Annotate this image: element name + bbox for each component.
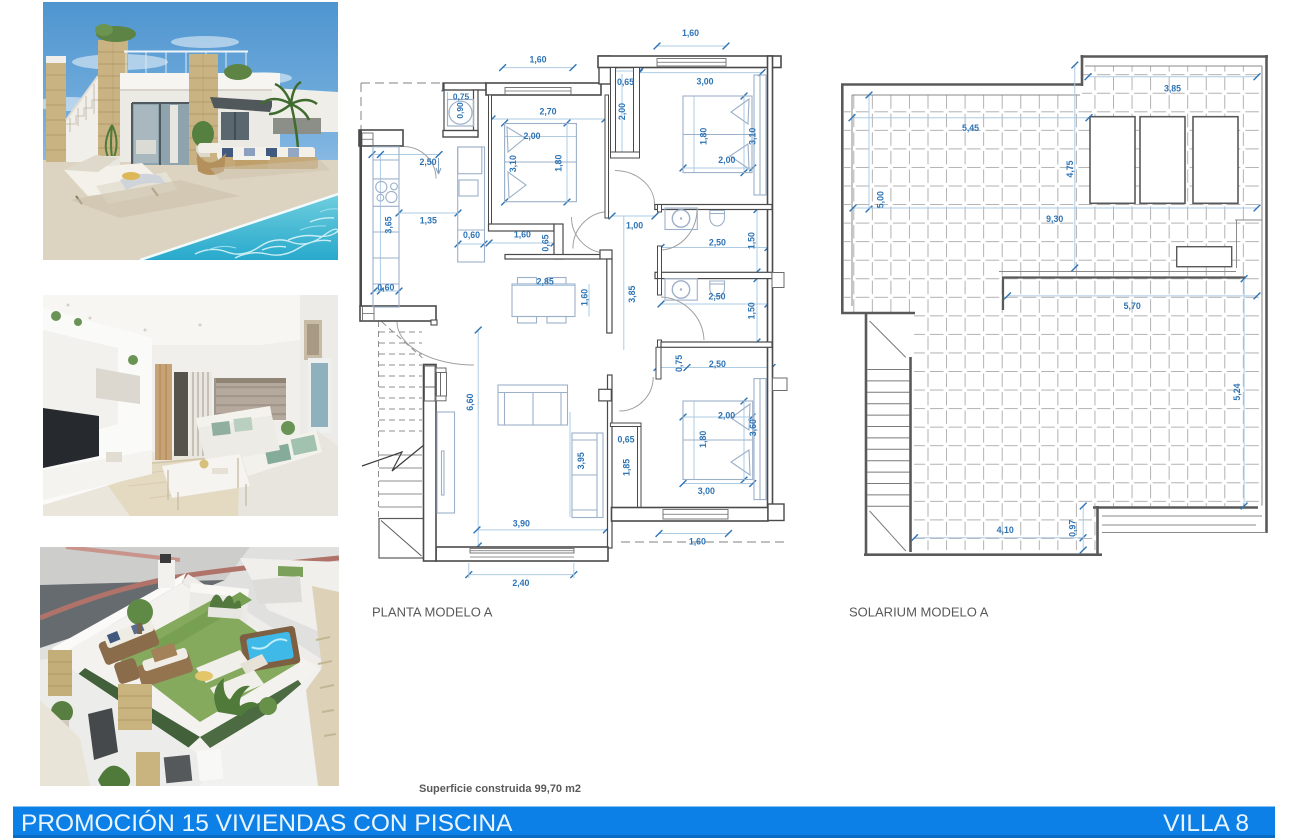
svg-text:0,75: 0,75 xyxy=(453,91,470,101)
svg-text:3,95: 3,95 xyxy=(576,452,586,469)
svg-text:0,65: 0,65 xyxy=(541,234,551,251)
svg-text:5,00: 5,00 xyxy=(876,191,886,208)
svg-text:3,90: 3,90 xyxy=(513,518,530,528)
svg-text:2,50: 2,50 xyxy=(419,157,436,167)
svg-text:3,85: 3,85 xyxy=(627,286,637,303)
svg-text:2,85: 2,85 xyxy=(537,276,554,286)
svg-text:1,85: 1,85 xyxy=(622,459,632,476)
svg-text:5,70: 5,70 xyxy=(1124,301,1141,311)
svg-text:6,60: 6,60 xyxy=(465,394,475,411)
svg-text:3,65: 3,65 xyxy=(384,216,394,233)
svg-text:2,70: 2,70 xyxy=(539,106,556,116)
svg-text:0,65: 0,65 xyxy=(617,434,634,444)
svg-text:VILLA 8: VILLA 8 xyxy=(1163,810,1249,837)
svg-text:4,10: 4,10 xyxy=(997,525,1014,535)
svg-text:0,97: 0,97 xyxy=(1068,520,1078,537)
svg-text:3,10: 3,10 xyxy=(747,128,757,145)
svg-text:4,75: 4,75 xyxy=(1065,160,1075,177)
svg-text:3,00: 3,00 xyxy=(696,77,713,87)
svg-text:1,60: 1,60 xyxy=(529,55,546,65)
svg-text:SOLARIUM MODELO A: SOLARIUM MODELO A xyxy=(849,605,989,620)
svg-text:1,00: 1,00 xyxy=(626,221,643,231)
svg-text:3,10: 3,10 xyxy=(508,155,518,172)
svg-text:1,35: 1,35 xyxy=(420,216,437,226)
svg-text:2,50: 2,50 xyxy=(709,359,726,369)
svg-text:1,50: 1,50 xyxy=(746,232,756,249)
svg-text:PLANTA MODELO A: PLANTA MODELO A xyxy=(372,605,493,620)
svg-text:Superficie construida 99,70 m2: Superficie construida 99,70 m2 xyxy=(419,783,581,795)
svg-text:1,60: 1,60 xyxy=(682,28,699,38)
svg-text:3,60: 3,60 xyxy=(748,419,758,436)
svg-text:1,60: 1,60 xyxy=(689,537,706,547)
svg-text:2,00: 2,00 xyxy=(617,103,627,120)
svg-text:2,00: 2,00 xyxy=(523,131,540,141)
svg-text:1,80: 1,80 xyxy=(699,128,709,145)
svg-text:3,85: 3,85 xyxy=(1164,83,1181,93)
svg-text:1,60: 1,60 xyxy=(514,229,531,239)
svg-text:2,50: 2,50 xyxy=(708,292,725,302)
svg-text:0,90: 0,90 xyxy=(455,102,465,119)
svg-text:3,00: 3,00 xyxy=(698,486,715,496)
svg-text:2,00: 2,00 xyxy=(718,155,735,165)
svg-text:1,50: 1,50 xyxy=(746,302,756,319)
svg-text:0,65: 0,65 xyxy=(617,77,634,87)
svg-text:2,50: 2,50 xyxy=(709,237,726,247)
svg-text:1,80: 1,80 xyxy=(698,431,708,448)
svg-text:1,60: 1,60 xyxy=(580,289,590,306)
svg-text:1,80: 1,80 xyxy=(554,155,564,172)
svg-text:2,00: 2,00 xyxy=(718,411,735,421)
svg-text:9,30: 9,30 xyxy=(1046,214,1063,224)
svg-text:5,45: 5,45 xyxy=(962,123,979,133)
svg-text:0,60: 0,60 xyxy=(377,283,394,293)
svg-text:0,60: 0,60 xyxy=(463,230,480,240)
svg-text:5,24: 5,24 xyxy=(1232,383,1242,400)
svg-text:0,75: 0,75 xyxy=(674,355,684,372)
svg-text:PROMOCIÓN 15 VIVIENDAS CON PIS: PROMOCIÓN 15 VIVIENDAS CON PISCINA xyxy=(21,810,513,837)
svg-text:2,40: 2,40 xyxy=(512,578,529,588)
